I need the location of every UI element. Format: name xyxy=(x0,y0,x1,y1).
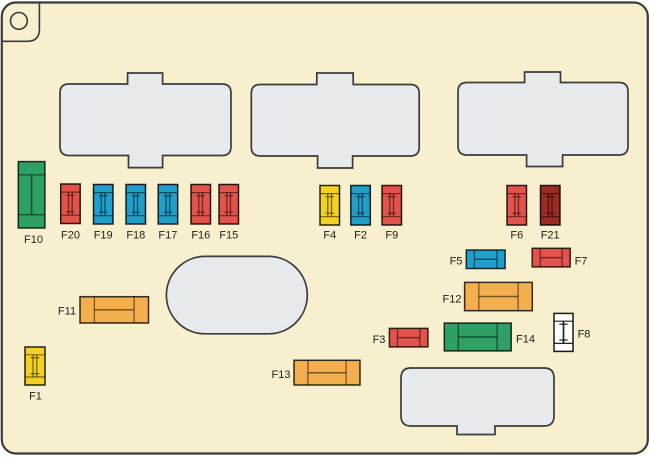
svg-text:F21: F21 xyxy=(541,230,560,242)
svg-text:F12: F12 xyxy=(443,294,462,306)
svg-text:F14: F14 xyxy=(516,334,535,346)
svg-text:F18: F18 xyxy=(126,230,145,242)
svg-text:F2: F2 xyxy=(354,230,367,242)
svg-text:F17: F17 xyxy=(158,230,177,242)
svg-text:F19: F19 xyxy=(94,230,113,242)
svg-text:F6: F6 xyxy=(510,230,523,242)
svg-text:F8: F8 xyxy=(578,329,591,341)
svg-text:F11: F11 xyxy=(58,306,76,318)
svg-text:F16: F16 xyxy=(191,230,210,242)
svg-text:F5: F5 xyxy=(450,256,463,268)
svg-text:F10: F10 xyxy=(24,234,43,246)
svg-text:F1: F1 xyxy=(29,391,42,403)
svg-text:F13: F13 xyxy=(272,369,291,381)
svg-text:F7: F7 xyxy=(575,256,588,268)
svg-text:F3: F3 xyxy=(373,334,386,346)
svg-text:F20: F20 xyxy=(61,230,80,242)
svg-text:F15: F15 xyxy=(219,230,238,242)
svg-text:F9: F9 xyxy=(385,230,398,242)
svg-text:F4: F4 xyxy=(323,230,336,242)
